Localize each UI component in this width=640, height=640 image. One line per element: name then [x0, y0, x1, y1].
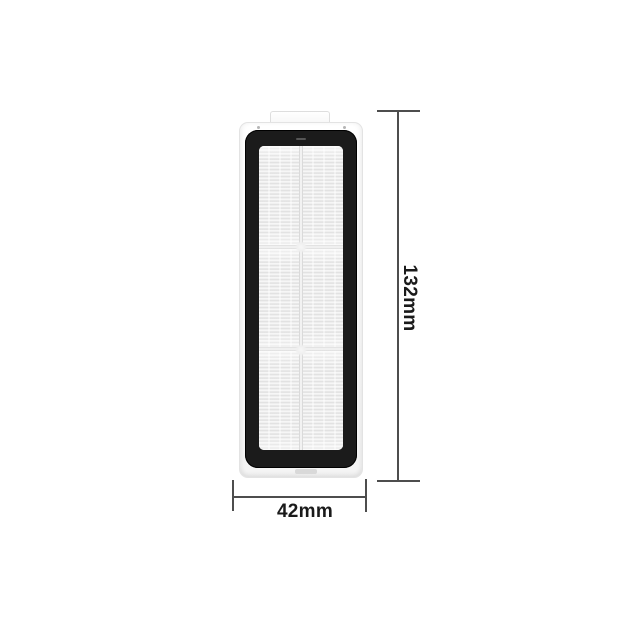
- filter-seal-frame: [245, 130, 357, 468]
- filter-pleated-media: [259, 146, 343, 450]
- width-dimension-label: 42mm: [277, 501, 333, 523]
- height-dimension-cap-bottom: [377, 480, 420, 482]
- filter-seam-vertical: [299, 146, 303, 450]
- width-dimension-line: [233, 496, 366, 498]
- product-dimension-diagram: 132mm 42mm: [0, 0, 640, 640]
- frame-pin-left: [257, 126, 260, 129]
- frame-pin-right: [343, 126, 346, 129]
- width-dimension-tick-right: [365, 479, 367, 512]
- height-dimension-label: 132mm: [398, 265, 420, 332]
- frame-top-dash: [296, 138, 306, 140]
- seam-center-dot: [295, 241, 307, 253]
- filter-bottom-notch: [295, 469, 317, 474]
- seam-center-dot: [295, 344, 307, 356]
